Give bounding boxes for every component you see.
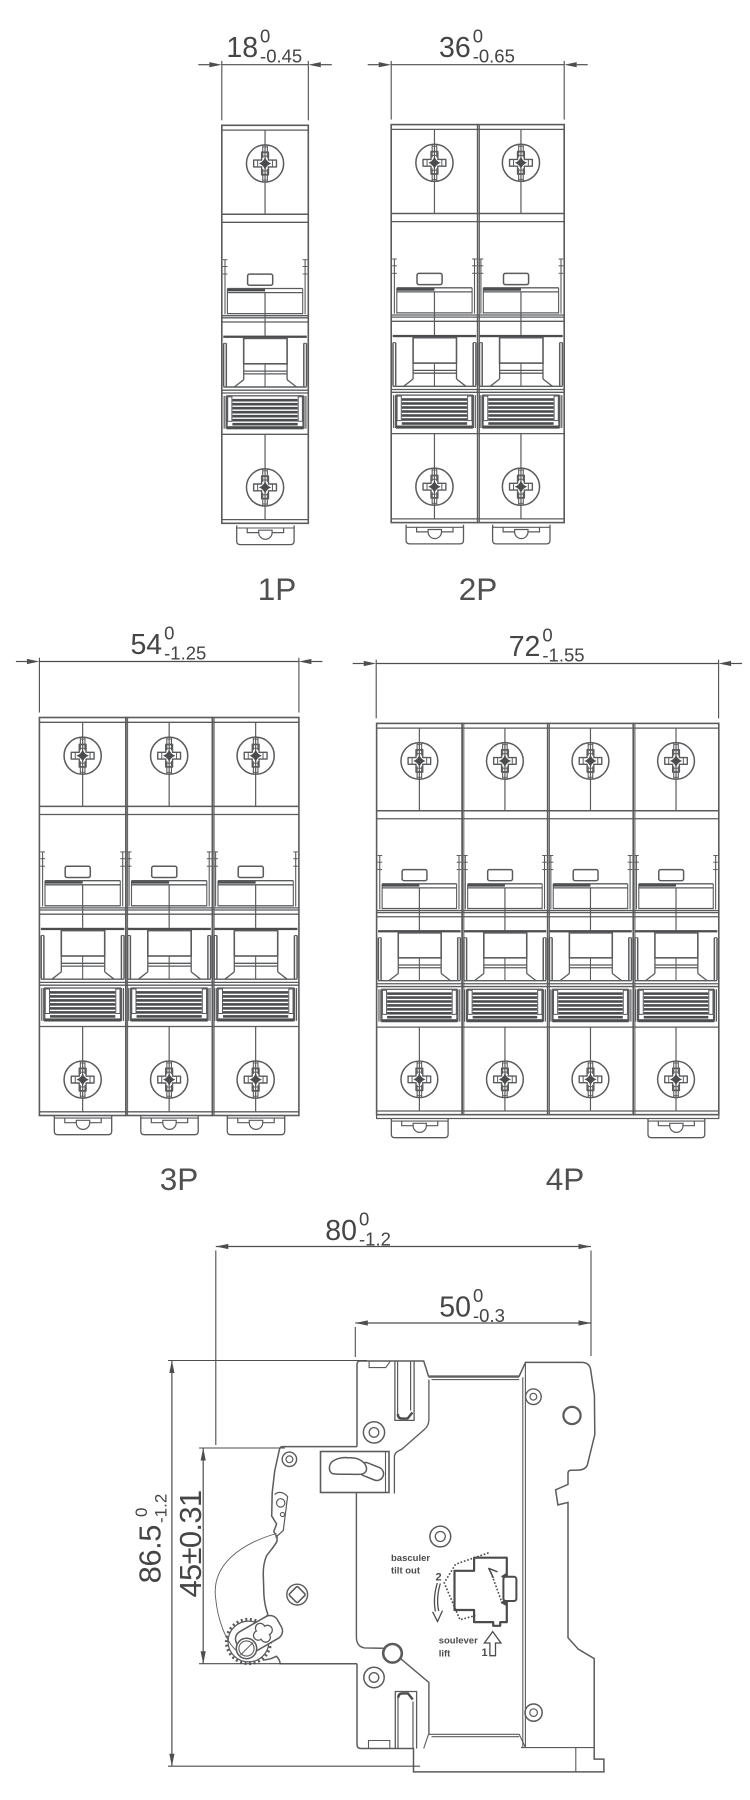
svg-text:-1.2: -1.2: [359, 1229, 391, 1250]
svg-text:tilt out: tilt out: [391, 1566, 421, 1577]
svg-text:-0.3: -0.3: [473, 1305, 505, 1326]
svg-text:80: 80: [325, 1215, 357, 1247]
svg-text:basculer: basculer: [391, 1553, 430, 1564]
svg-text:86.5: 86.5: [133, 1525, 168, 1583]
svg-text:4P: 4P: [546, 1161, 585, 1197]
svg-text:2P: 2P: [459, 571, 498, 607]
svg-text:1P: 1P: [258, 571, 297, 607]
svg-text:1: 1: [482, 1647, 488, 1659]
svg-text:0: 0: [473, 26, 483, 47]
svg-text:0: 0: [260, 26, 270, 47]
svg-text:-0.45: -0.45: [260, 46, 302, 67]
svg-text:lift: lift: [439, 1649, 451, 1660]
svg-text:54: 54: [130, 629, 162, 661]
svg-text:-1.2: -1.2: [152, 1494, 171, 1523]
svg-text:soulever: soulever: [439, 1636, 478, 1647]
svg-text:45±0.31: 45±0.31: [173, 1491, 208, 1598]
svg-text:2: 2: [436, 1572, 442, 1584]
svg-text:-1.55: -1.55: [542, 644, 584, 665]
svg-text:0: 0: [542, 624, 552, 645]
svg-text:0: 0: [132, 1508, 151, 1517]
svg-text:0: 0: [164, 622, 174, 643]
svg-text:3P: 3P: [160, 1161, 199, 1197]
svg-text:-0.65: -0.65: [473, 46, 515, 67]
svg-text:18: 18: [226, 32, 258, 64]
svg-text:0: 0: [359, 1209, 369, 1230]
svg-text:0: 0: [473, 1285, 483, 1306]
svg-text:72: 72: [509, 631, 541, 663]
svg-text:36: 36: [439, 32, 471, 64]
svg-text:50: 50: [439, 1292, 471, 1324]
svg-text:-1.25: -1.25: [164, 642, 206, 663]
